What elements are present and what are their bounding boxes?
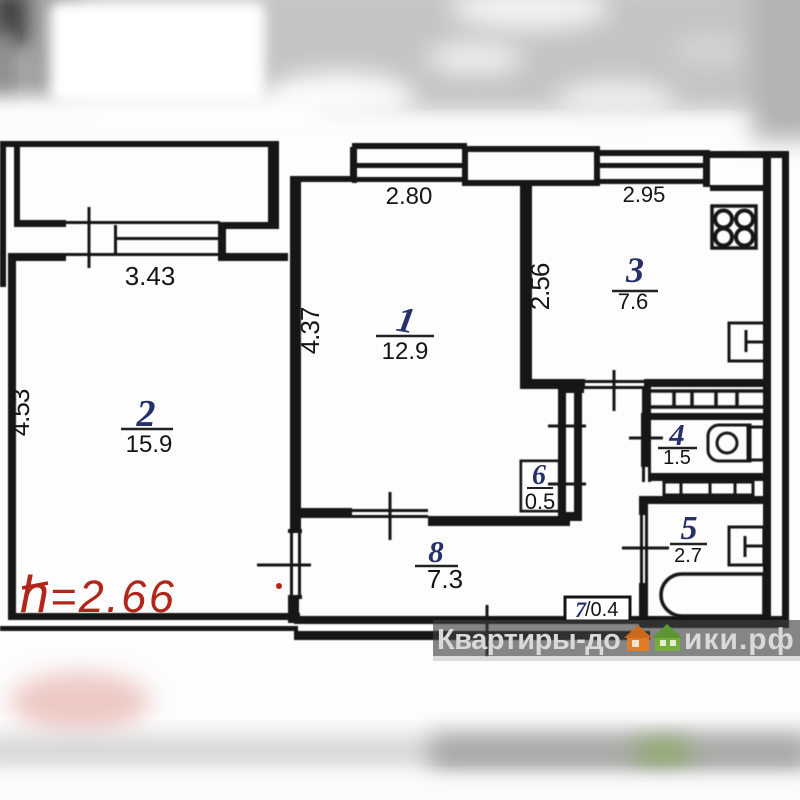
svg-text:7.6: 7.6 xyxy=(618,289,649,314)
svg-text:h: h xyxy=(20,566,49,624)
svg-text:5: 5 xyxy=(681,510,698,547)
svg-text:2.95: 2.95 xyxy=(623,182,666,207)
svg-text:3.43: 3.43 xyxy=(125,261,176,291)
svg-text:12.9: 12.9 xyxy=(382,338,429,365)
svg-text:=2.66: =2.66 xyxy=(50,571,176,622)
svg-text:Квартиры-до: Квартиры-до xyxy=(437,624,620,656)
svg-text:2.56: 2.56 xyxy=(525,263,555,310)
svg-text:15.9: 15.9 xyxy=(126,431,173,458)
svg-text:3: 3 xyxy=(625,250,644,290)
svg-text:1.5: 1.5 xyxy=(663,447,691,469)
svg-text:4.53: 4.53 xyxy=(5,389,35,436)
svg-text:/0.4: /0.4 xyxy=(585,599,618,621)
svg-text:2.7: 2.7 xyxy=(674,545,702,567)
svg-text:7.3: 7.3 xyxy=(427,564,463,594)
svg-text:6: 6 xyxy=(532,460,546,491)
svg-text:ики.рф: ики.рф xyxy=(684,623,795,656)
svg-text:4.37: 4.37 xyxy=(295,307,325,354)
svg-text:0.5: 0.5 xyxy=(525,489,556,514)
svg-text:2.80: 2.80 xyxy=(386,183,433,210)
